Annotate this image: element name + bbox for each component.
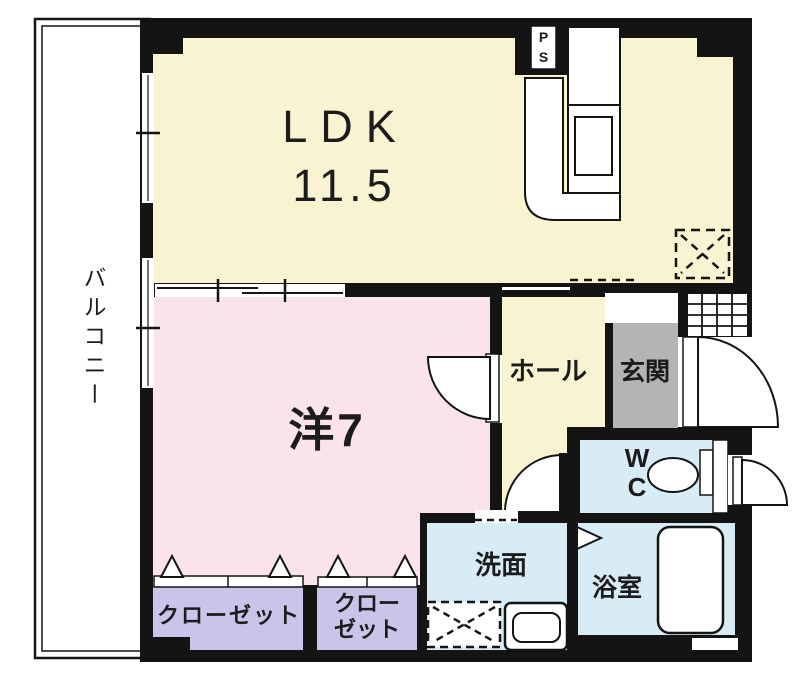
washroom-label: 洗面 [464,551,538,581]
pipe-space-label: P S [531,27,556,67]
toilet-tank [700,450,713,495]
ldk-label: LDK [258,101,433,153]
vanity-sink [505,603,567,650]
hall-opening-seam [502,287,570,290]
entrance-inner-strip [605,293,678,323]
kitchen-sink [575,117,612,175]
bathroom-label: 浴室 [582,574,652,603]
closet-small-label-line1: クロー [320,591,414,617]
wall-corner-topright [697,18,742,57]
closet-small-label: クロー ゼット [320,591,414,643]
wall-step [150,637,190,650]
door-entrance-leaf [683,337,698,427]
pipe-space-label-line2: S [531,47,556,67]
hall-label: ホール [498,357,598,387]
pipe-space-label-line1: P [531,27,556,47]
closet-small-label-line2: ゼット [320,617,414,643]
door-washroom-leaf [559,453,567,513]
wc-label-line1: W [614,444,660,473]
wc-door-panel [713,440,728,513]
balcony-label: バルコニー [62,258,106,418]
washing-machine-space [428,602,500,647]
wall-wc-left [567,427,580,523]
western-room-label: 洋7 [237,404,417,457]
wc-label: W C [614,444,660,502]
bathroom-sill [692,638,738,650]
wc-label-line2: C [614,473,660,502]
ldk-size-label: 11.5 [252,160,437,212]
room-ldk [153,38,733,283]
bathtub [658,527,723,633]
wall-corner-topleft [140,18,183,54]
closet-large-label: クローゼット [157,603,299,628]
entrance-label: 玄関 [612,358,678,387]
floorplan: バルコニー LDK 11.5 洋7 ホール 玄関 W C 洗面 浴室 クローゼッ… [0,0,800,674]
porch-tile-grid [687,293,748,337]
door-exterior-leaf [733,457,742,505]
